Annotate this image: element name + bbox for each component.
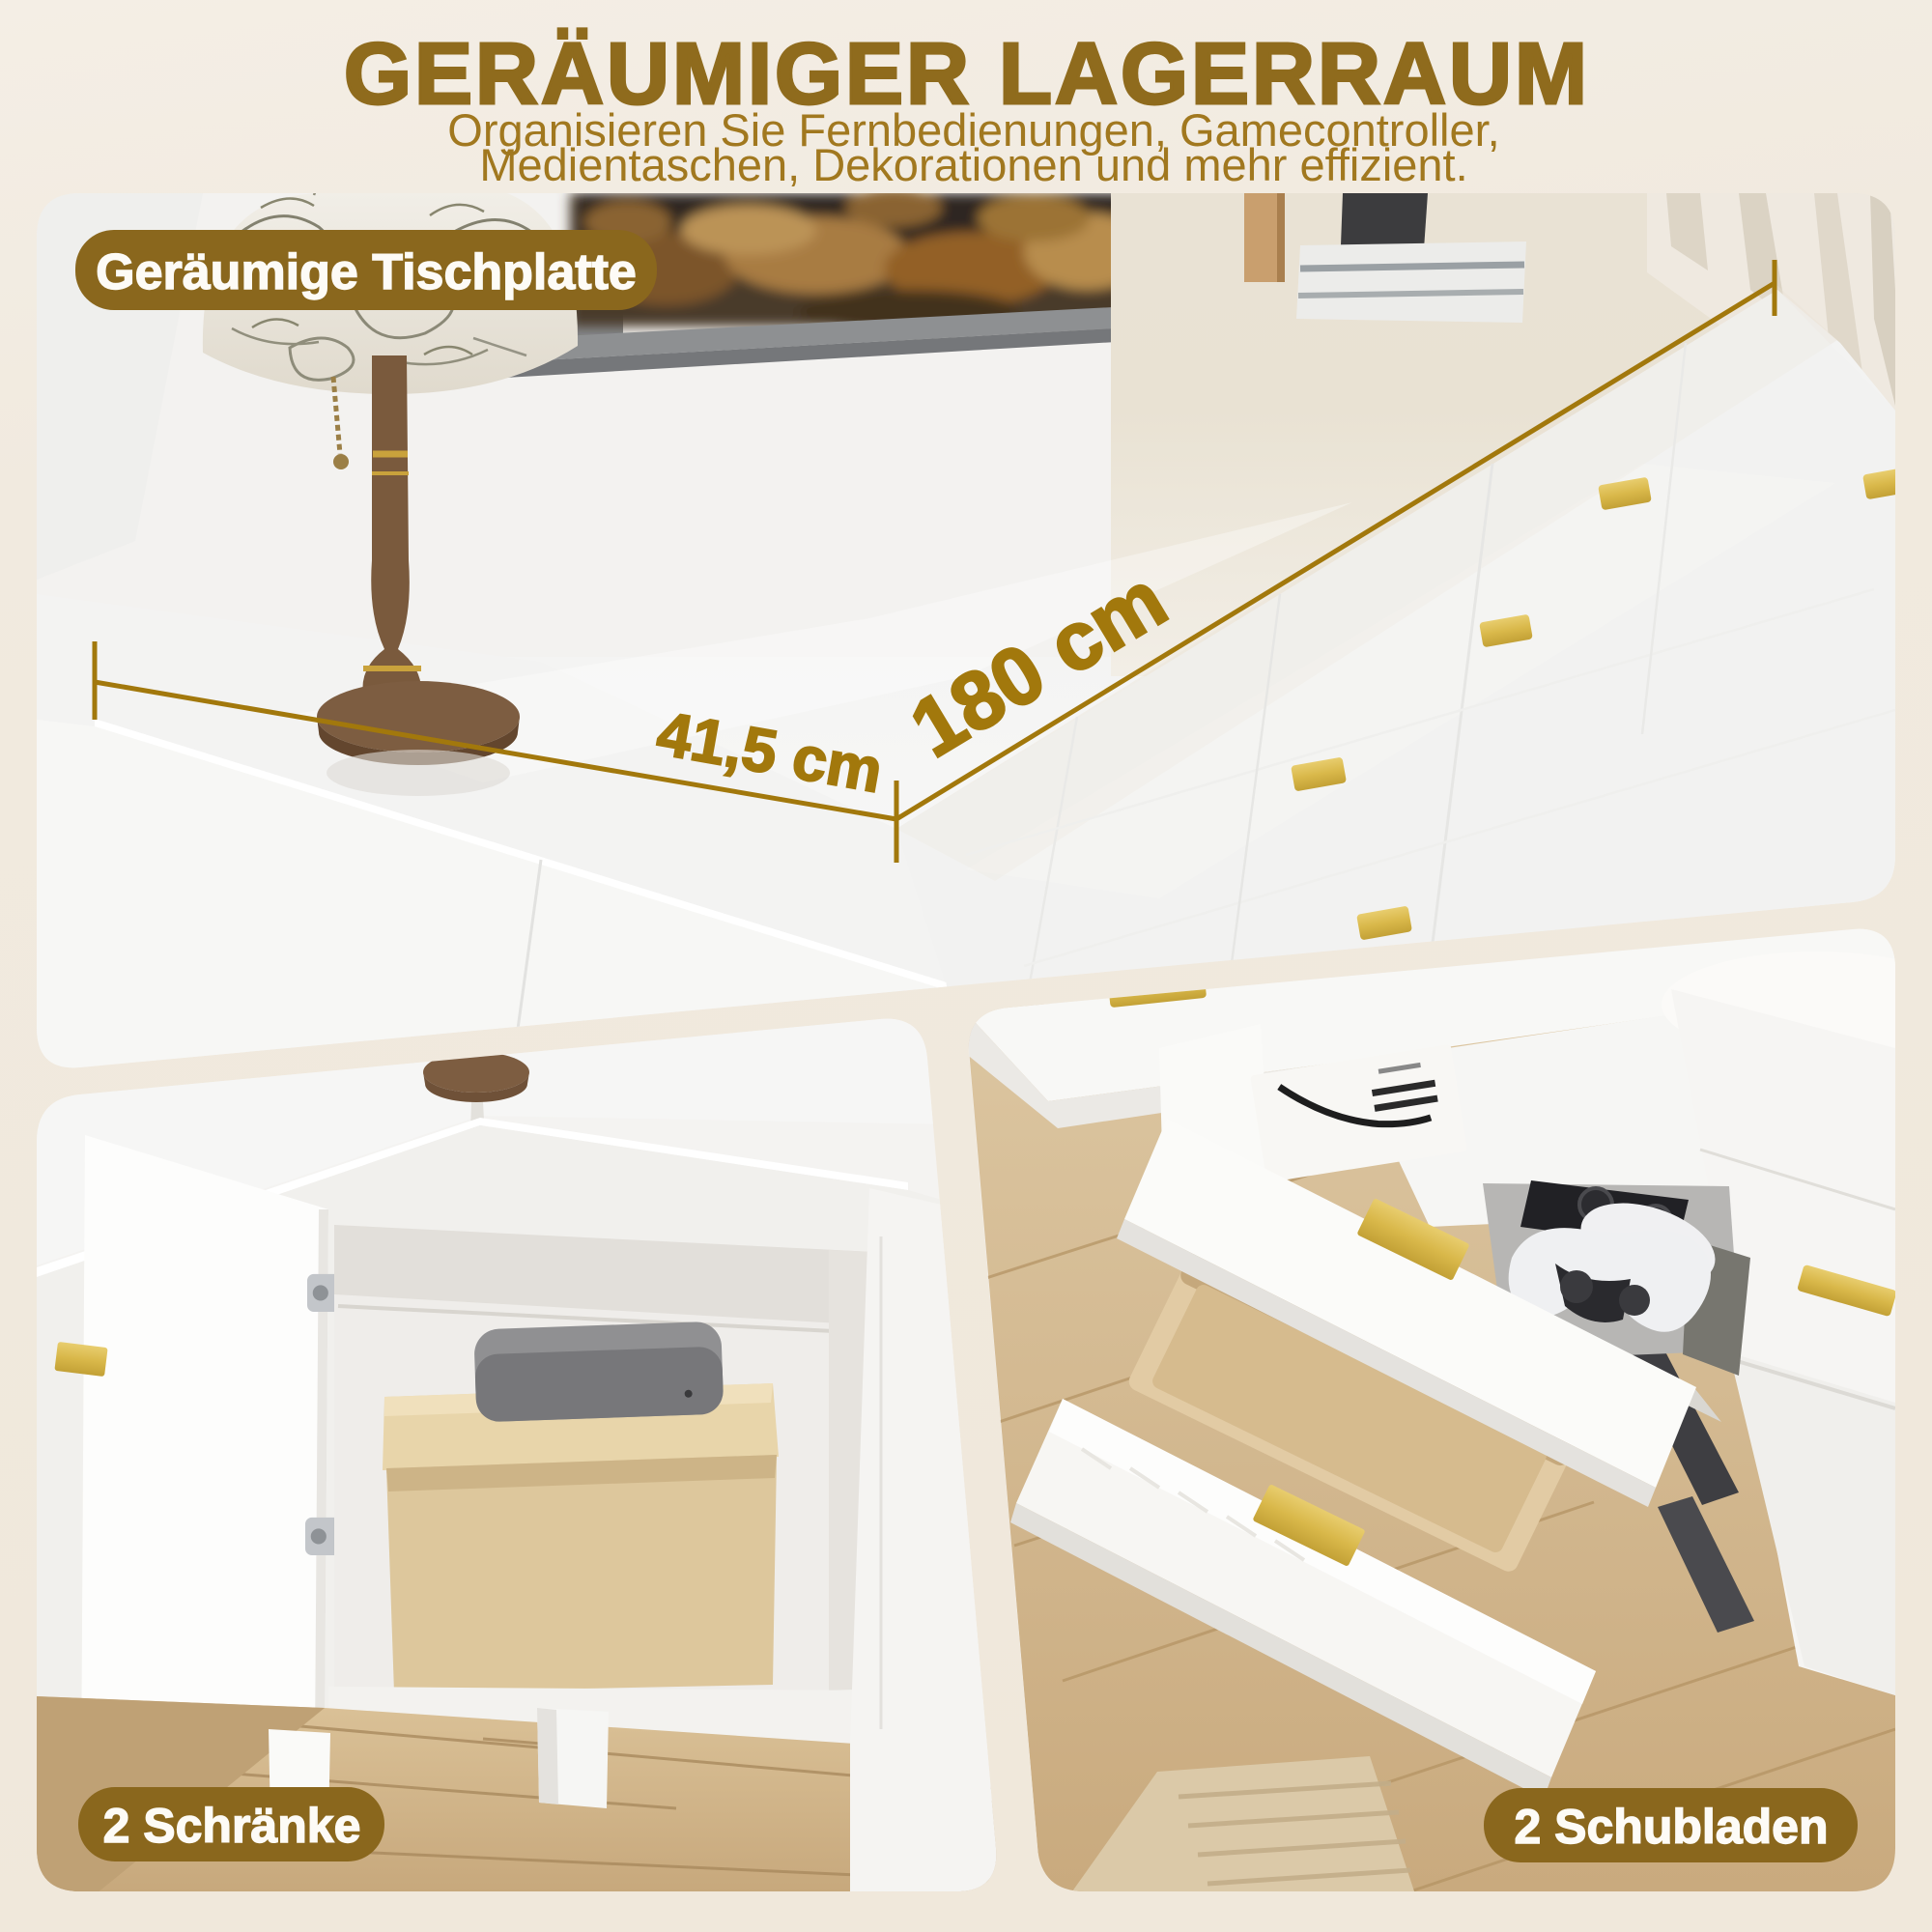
svg-text:Geräumige Tischplatte: Geräumige Tischplatte <box>96 244 637 300</box>
svg-text:Medientaschen, Dekorationen un: Medientaschen, Dekorationen und mehr eff… <box>479 139 1467 190</box>
svg-text:2 Schubladen: 2 Schubladen <box>1514 1800 1828 1854</box>
svg-text:2 Schränke: 2 Schränke <box>103 1799 361 1853</box>
